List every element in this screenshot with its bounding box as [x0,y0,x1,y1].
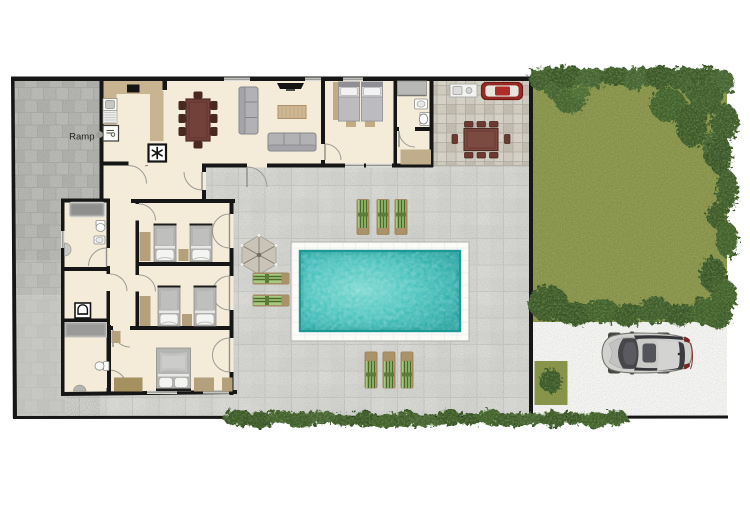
svg-text:Ramp: Ramp [69,132,94,143]
